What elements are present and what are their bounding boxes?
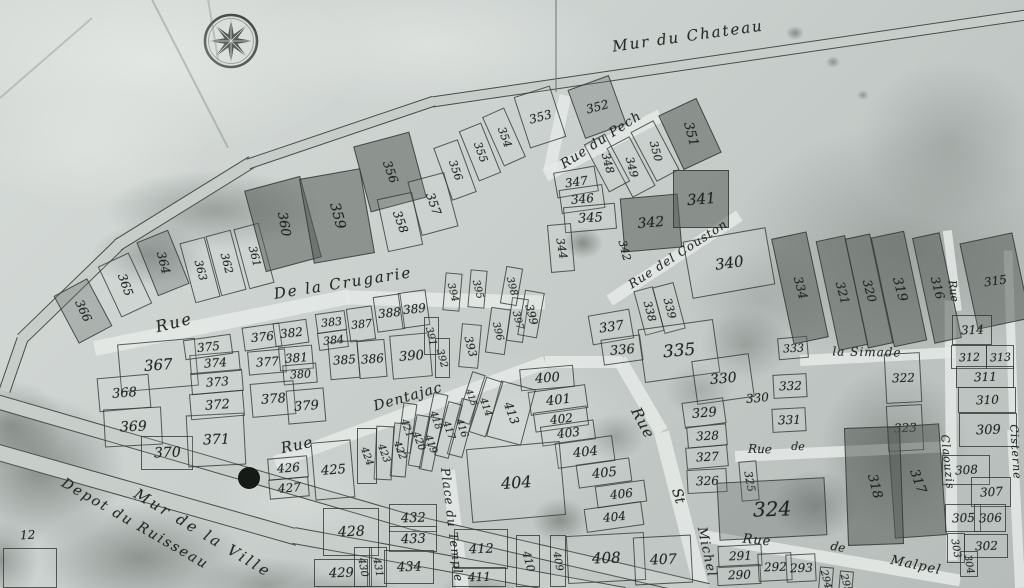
- parcel-number: 371: [202, 432, 229, 449]
- parcel-unlabeled: [3, 548, 57, 588]
- parcel-number: 342: [615, 238, 633, 262]
- parcel-number: 392: [434, 347, 450, 368]
- parcel-332: 332: [772, 373, 807, 399]
- paper-highlight: [0, 90, 210, 210]
- parcel-number: 309: [975, 422, 1000, 438]
- parcel-306: 306: [974, 504, 1006, 532]
- parcel-number: 400: [534, 370, 560, 387]
- parcel-number: 404: [572, 443, 598, 461]
- parcel-number: 375: [196, 339, 220, 355]
- parcel-number: 321: [832, 280, 851, 306]
- historical-cadastral-map: 3663653643633623613603593563583573563553…: [0, 0, 1024, 588]
- parcel-number: 365: [115, 272, 136, 298]
- parcel-number: 432: [400, 510, 425, 526]
- parcel-number: 424: [359, 445, 376, 467]
- parcel-number: 376: [250, 329, 274, 345]
- parcel-number: 324: [752, 496, 791, 521]
- parcel-number: 398: [503, 275, 519, 296]
- parcel-404: 404: [466, 441, 566, 523]
- parcel-number: 290: [727, 568, 750, 583]
- parcel-number: 306: [978, 511, 1001, 526]
- parcel-number: 404: [602, 509, 626, 525]
- paper-fold-line: [0, 17, 93, 99]
- parcel-386: 386: [356, 339, 387, 379]
- parcel-number: 413: [501, 400, 522, 426]
- parcel-330: 330: [742, 388, 772, 408]
- parcel-number: 351: [680, 120, 701, 148]
- parcel-number: 412: [468, 541, 493, 557]
- parcel-number: 330: [745, 390, 769, 406]
- parcel-387: 387: [346, 305, 376, 342]
- parcel-number: 370: [153, 445, 180, 462]
- parcel-number: 373: [205, 374, 229, 390]
- parcel-434: 434: [384, 550, 434, 584]
- parcel-number: 360: [273, 210, 292, 237]
- parcel-number: 378: [260, 391, 286, 408]
- parcel-number: 335: [662, 340, 696, 363]
- parcel-number: 389: [402, 301, 426, 317]
- parcel-number: 380: [289, 367, 311, 381]
- parcel-number: 390: [398, 348, 424, 365]
- parcel-number: 356: [380, 159, 401, 185]
- parcel-number: 293: [789, 561, 812, 576]
- parcel-427: 427: [268, 476, 310, 499]
- parcel-number: 429: [328, 565, 353, 581]
- parcel-382: 382: [272, 319, 309, 347]
- parcel-342: 342: [611, 240, 637, 260]
- ink-wash-stain: [826, 56, 840, 68]
- parcel-number: 414: [478, 396, 495, 418]
- parcel-number: 320: [859, 278, 878, 304]
- parcel-number: 322: [891, 371, 914, 386]
- parcel-number: 410: [519, 549, 537, 573]
- parcel-344: 344: [547, 223, 575, 273]
- parcel-number: 356: [445, 158, 464, 182]
- parcel-number: 331: [777, 413, 800, 428]
- parcel-number: 345: [577, 210, 603, 226]
- parcel-number: 352: [584, 97, 610, 116]
- parcel-number: 348: [598, 151, 616, 175]
- parcel-number: 372: [204, 397, 230, 414]
- parcel-number: 405: [591, 464, 617, 482]
- paper-highlight: [240, 0, 620, 110]
- parcel-number: 317: [906, 467, 929, 495]
- parcel-number: 366: [72, 298, 94, 325]
- parcel-393: 393: [458, 323, 482, 369]
- parcel-number: 434: [396, 559, 421, 575]
- parcel-number: 332: [778, 379, 801, 394]
- parcel-number: 407: [649, 552, 676, 569]
- parcel-number: 319: [889, 275, 910, 303]
- parcel-number: 406: [609, 486, 633, 502]
- parcel-number: 369: [119, 419, 146, 436]
- parcel-number: 342: [637, 214, 665, 232]
- parcel-number: 358: [390, 209, 411, 235]
- parcel-number: 363: [191, 258, 209, 282]
- parcel-number: 426: [276, 460, 300, 476]
- parcel-number: 367: [143, 355, 173, 375]
- parcel-385: 385: [327, 340, 360, 380]
- parcel-number: 386: [360, 351, 384, 367]
- parcel-number: 383: [320, 314, 342, 329]
- parcel-number: 292: [763, 560, 786, 575]
- parcel-number: 334: [790, 275, 809, 301]
- parcel-number: 350: [646, 139, 664, 163]
- wall-band: [0, 337, 28, 393]
- parcel-number: 399: [522, 302, 540, 326]
- parcel-number: 341: [686, 189, 716, 209]
- parcel-number: 394: [444, 281, 460, 302]
- parcel-number: 374: [203, 355, 227, 371]
- parcel-number: 430: [356, 557, 370, 578]
- parcel-number: 368: [111, 385, 137, 402]
- parcel-433: 433: [389, 526, 437, 552]
- parcel-number: 329: [691, 404, 717, 421]
- parcel-410: 410: [516, 535, 540, 587]
- parcel-307: 307: [971, 477, 1011, 507]
- parcel-12: 12: [13, 525, 43, 545]
- parcel-number: 428: [337, 524, 364, 541]
- parcel-number: 431: [371, 557, 385, 578]
- parcel-number: 422: [392, 439, 409, 461]
- map-dot-marker: [238, 467, 260, 489]
- parcel-370: 370: [141, 436, 193, 470]
- parcel-number: 385: [332, 352, 356, 368]
- parcel-number: 295: [838, 572, 854, 588]
- parcel-number: 396: [490, 320, 506, 341]
- parcel-294: 294: [818, 566, 834, 588]
- parcel-number: 355: [470, 140, 489, 164]
- parcel-number: 338: [640, 299, 658, 323]
- parcel-number: 315: [983, 272, 1008, 289]
- parcel-number: 294: [818, 568, 834, 588]
- parcel-number: 12: [20, 528, 36, 543]
- parcel-number: 318: [864, 472, 885, 500]
- parcel-number: 364: [153, 250, 172, 276]
- parcel-404: 404: [584, 501, 645, 533]
- parcel-number: 423: [376, 442, 393, 464]
- parcel-number: 401: [545, 391, 571, 409]
- parcel-number: 408: [591, 549, 620, 568]
- parcel-number: 307: [979, 484, 1003, 499]
- ink-wash-stain: [857, 90, 869, 100]
- parcel-number: 425: [320, 462, 346, 479]
- parcel-number: 353: [527, 107, 553, 126]
- parcel-number: 354: [494, 125, 513, 149]
- parcel-number: 393: [461, 334, 479, 358]
- parcel-295: 295: [838, 570, 854, 588]
- parcel-number: 339: [660, 296, 678, 320]
- parcel-number: 387: [350, 316, 372, 331]
- parcel-number: 357: [423, 191, 444, 217]
- parcel-number: 433: [400, 531, 425, 547]
- paper-fold-line: [555, 0, 557, 92]
- parcel-number: 388: [377, 305, 401, 321]
- parcel-number: 362: [217, 251, 235, 275]
- parcel-331: 331: [771, 407, 806, 433]
- parcel-number: 340: [714, 252, 745, 274]
- parcel-number: 377: [255, 354, 279, 370]
- wall-band: [115, 156, 256, 250]
- parcel-number: 344: [553, 237, 569, 260]
- compass-rose-icon: [201, 11, 261, 71]
- paper-highlight: [0, 0, 360, 155]
- parcel-number: 409: [551, 551, 565, 572]
- parcel-number: 359: [326, 201, 348, 231]
- parcel-number: 404: [500, 471, 532, 492]
- parcel-number: 395: [469, 278, 485, 299]
- parcel-395: 395: [467, 269, 487, 308]
- parcel-409: 409: [550, 535, 566, 587]
- parcel-number: 403: [556, 425, 580, 441]
- parcel-number: 382: [279, 325, 303, 341]
- parcel-number: 427: [277, 480, 301, 496]
- parcel-number: 330: [709, 370, 737, 388]
